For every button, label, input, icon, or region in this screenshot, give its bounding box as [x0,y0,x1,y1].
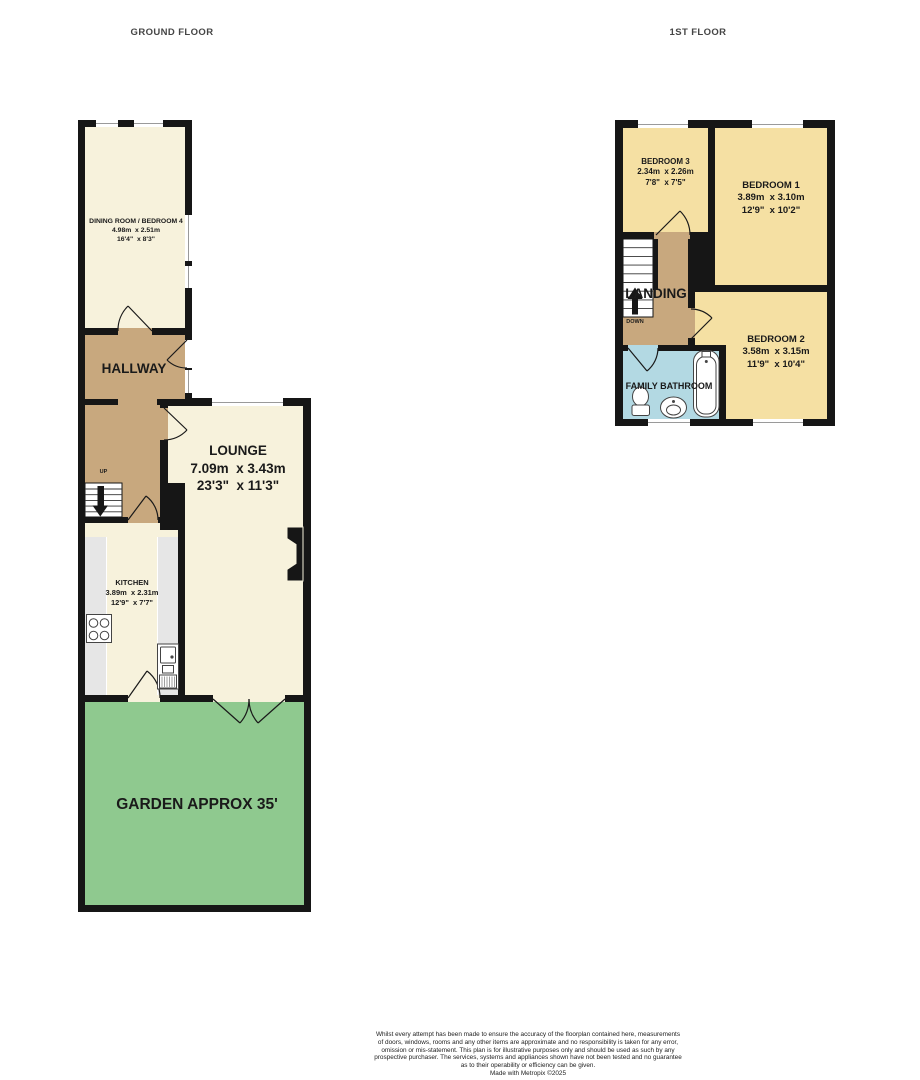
lounge-name: LOUNGE [172,442,304,460]
basin [661,397,687,418]
hallway-label: HALLWAY [79,360,189,378]
lounge-metric: 7.09m x 3.43m [172,460,304,478]
door-arc-dining [118,306,152,331]
dining-room-label: DINING ROOM / BEDROOM 4 4.98m x 2.51m 16… [81,218,191,244]
garden-label: GARDEN APPROX 35' [97,795,297,815]
bedroom2-label: BEDROOM 2 3.58m x 3.15m 11'9" x 10'4" [715,334,837,371]
door-arc-hallway-lounge [164,408,187,440]
bedroom3-metric: 2.34m x 2.26m [623,167,708,177]
door-arc-hallway-kitchen [128,496,158,520]
bathroom-name: FAMILY BATHROOM [615,381,723,393]
hob [87,615,112,643]
bedroom2-name: BEDROOM 2 [715,334,837,346]
door-arc-french-left [213,699,249,723]
door-arc-bathroom [628,348,658,371]
disclaimer-line: omission or mis-statement. This plan is … [338,1047,718,1055]
stairs-first-floor [623,239,653,317]
landing-label: LANDING [611,285,701,303]
landing-name: LANDING [611,285,701,303]
dining-room-metric: 4.98m x 2.51m [81,227,191,236]
bedroom3-imperial: 7'8" x 7'5" [623,178,708,188]
bedroom1-metric: 3.89m x 3.10m [710,192,832,204]
bathroom-label: FAMILY BATHROOM [615,381,723,393]
bedroom2-metric: 3.58m x 3.15m [715,346,837,358]
bedroom3-name: BEDROOM 3 [623,157,708,167]
lounge-label: LOUNGE 7.09m x 3.43m 23'3" x 11'3" [172,442,304,495]
door-arc-french-right [249,699,285,723]
disclaimer-line: as to their operability or efficiency ca… [338,1062,718,1070]
dining-room-imperial: 16'4" x 8'3" [81,236,191,245]
bedroom3-label: BEDROOM 3 2.34m x 2.26m 7'8" x 7'5" [623,157,708,188]
kitchen-metric: 3.89m x 2.31m [77,588,187,598]
bedroom2-imperial: 11'9" x 10'4" [715,359,837,371]
chimney-breast [287,527,303,581]
disclaimer-line: of doors, windows, rooms and any other i… [338,1039,718,1047]
disclaimer-line: prospective purchaser. The services, sys… [338,1054,718,1062]
disclaimer-line: Made with Metropix ©2025 [338,1070,718,1078]
bedroom1-name: BEDROOM 1 [710,180,832,192]
stairs-ground-floor [85,483,122,517]
sink-unit [158,644,179,689]
door-arc-bedroom3 [656,211,690,235]
disclaimer-line: Whilst every attempt has been made to en… [338,1031,718,1039]
kitchen-name: KITCHEN [77,578,187,588]
hallway-name: HALLWAY [79,360,189,378]
disclaimer-text: Whilst every attempt has been made to en… [338,1031,718,1078]
floorplan-symbols [0,0,920,1080]
garden-name: GARDEN APPROX 35' [97,795,297,815]
bedroom1-label: BEDROOM 1 3.89m x 3.10m 12'9" x 10'2" [710,180,832,217]
stairs-down-label: DOWN [616,319,654,325]
floorplan-canvas: GROUND FLOOR 1ST FLOOR [0,0,920,1080]
door-arc-bedroom2 [691,309,712,339]
kitchen-imperial: 12'9" x 7'7" [77,598,187,608]
door-arc-kitchen-garden [128,671,160,698]
bedroom1-imperial: 12'9" x 10'2" [710,205,832,217]
lounge-imperial: 23'3" x 11'3" [172,477,304,495]
stairs-up-label: UP [85,469,122,475]
kitchen-label: KITCHEN 3.89m x 2.31m 12'9" x 7'7" [77,578,187,607]
dining-room-name: DINING ROOM / BEDROOM 4 [81,218,191,227]
